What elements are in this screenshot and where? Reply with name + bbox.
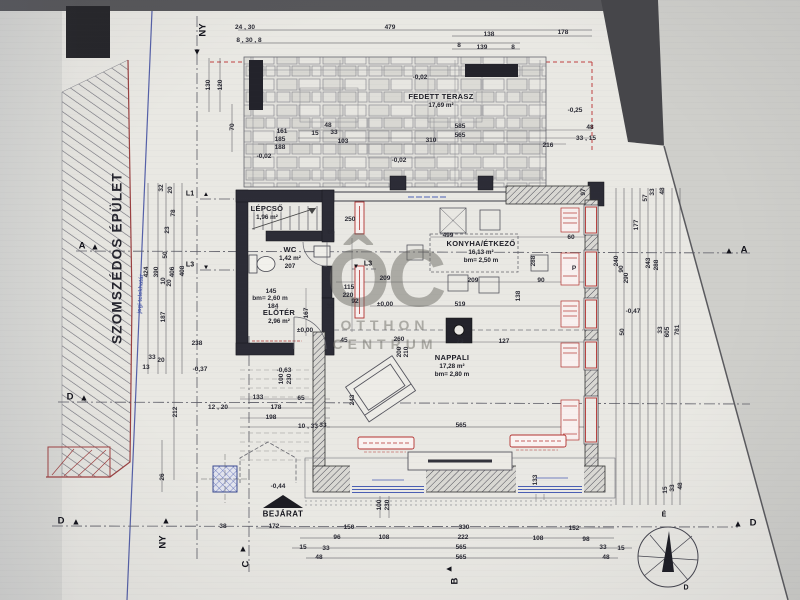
dim-label: 565: [456, 545, 467, 552]
dim-label: 50: [620, 328, 627, 335]
dim-label: -0,37: [193, 367, 208, 374]
section-marker: É: [662, 512, 667, 519]
dim-label: 178: [271, 405, 282, 412]
section-marker: D: [750, 518, 757, 528]
dim-label: 70: [230, 123, 237, 130]
dim-label: 150: [344, 525, 355, 532]
room-area: 16,13 m²: [447, 249, 516, 257]
section-marker-triangle: ▲: [725, 247, 734, 256]
dim-label: -0,02: [413, 75, 428, 82]
dim-label: 138: [516, 291, 523, 302]
room-name: NAPPALI: [435, 353, 469, 363]
dim-label: 188: [275, 145, 286, 152]
dim-label: 38: [219, 524, 226, 531]
dim-label: 65: [297, 396, 304, 403]
room-height: 207: [279, 263, 301, 271]
room-name: FEDETT TERASZ: [408, 92, 473, 102]
dim-label: 98: [582, 537, 589, 544]
dim-label: 185: [275, 137, 286, 144]
room-label: FEDETT TERASZ17,69 m²: [408, 92, 473, 110]
dim-label: 20: [157, 358, 164, 365]
dim-label: 177: [634, 220, 641, 231]
section-marker: D: [67, 392, 74, 402]
section-marker: A: [79, 241, 86, 251]
dim-label: 260: [394, 337, 405, 344]
dim-label: -0,02: [257, 154, 272, 161]
dim-label: 32: [159, 184, 166, 191]
section-marker-triangle: ▲: [239, 545, 248, 554]
dim-label: 26: [160, 473, 167, 480]
dim-label: 48: [678, 482, 685, 489]
dim-label: 139: [477, 45, 488, 52]
section-marker: B: [450, 578, 460, 585]
room-name: KONYHA/ÉTKEZŐ: [447, 239, 516, 249]
dim-label: 33: [322, 546, 329, 553]
dim-label: -0,47: [626, 309, 641, 316]
dim-label: 96: [333, 535, 340, 542]
dim-label: 45: [340, 338, 347, 345]
dim-label: 10 , 33: [298, 424, 318, 431]
dim-label: 90: [537, 278, 544, 285]
dim-label: 209: [380, 276, 391, 283]
dim-label: 48: [602, 555, 609, 562]
dim-label: 238: [192, 341, 203, 348]
dim-label: 78: [171, 209, 178, 216]
dim-label: 127: [499, 339, 510, 346]
dim-label: 390: [154, 267, 161, 278]
room-area: 17,28 m²: [435, 363, 469, 371]
section-marker-triangle: ▲: [445, 565, 454, 574]
dim-label: 222: [458, 535, 469, 542]
section-marker: L1: [186, 191, 194, 198]
dim-label: 33: [599, 545, 606, 552]
dim-label: 288: [531, 256, 538, 267]
dim-label: 20: [168, 186, 175, 193]
room-label: LÉPCSŐ1,96 m²: [251, 204, 284, 222]
dim-label: 8: [457, 43, 461, 50]
room-area: 1,96 m²: [251, 214, 284, 222]
dim-label: -0,25: [568, 108, 583, 115]
dim-label: 33: [148, 355, 155, 362]
dim-label: 20: [167, 279, 174, 286]
dim-label: 310: [426, 138, 437, 145]
section-marker-triangle: ▲: [193, 48, 202, 57]
room-height: bm= 2,80 m: [435, 371, 469, 379]
section-marker-triangle: ▲: [80, 394, 89, 403]
room-label: KONYHA/ÉTKEZŐ16,13 m²bm= 2,50 m: [447, 239, 516, 265]
dim-label: 48: [586, 125, 593, 132]
room-label: NAPPALI17,28 m²bm= 2,80 m: [435, 353, 469, 379]
section-marker-triangle: ▲: [72, 518, 81, 527]
dim-label: 565: [456, 423, 467, 430]
dim-label: 585: [455, 124, 466, 131]
dim-label: 172: [269, 524, 280, 531]
dim-label: 212: [173, 407, 180, 418]
dim-label: 100: [279, 374, 286, 385]
dim-label: 565: [455, 133, 466, 140]
dim-label: 479: [385, 25, 396, 32]
dim-label: 33: [650, 188, 657, 195]
dim-label: 210: [404, 347, 411, 358]
dim-label: P: [572, 266, 576, 273]
section-marker: D: [683, 585, 688, 592]
room-label: ELŐTÉR2,96 m²: [263, 308, 295, 326]
dim-label: 230: [287, 374, 294, 385]
dim-label: 48: [315, 555, 322, 562]
dim-label: 15: [299, 545, 306, 552]
dim-label: 92: [351, 299, 358, 306]
dim-label: 60: [567, 235, 574, 242]
dim-label: 133: [253, 395, 264, 402]
dim-label: 108: [533, 536, 544, 543]
dim-label: 100: [377, 500, 384, 511]
dim-label: bm= 2,60 m: [252, 296, 288, 303]
dim-label: 15: [617, 546, 624, 553]
dim-label: ±0,00: [377, 302, 393, 309]
dim-label: 33: [326, 304, 333, 311]
room-label: WC1,42 m²207: [279, 245, 301, 271]
dim-label: 138: [484, 32, 495, 39]
dim-label: 33: [319, 423, 326, 430]
section-marker: L3: [364, 261, 372, 268]
dim-label: 115: [344, 285, 355, 292]
section-marker: NY: [158, 535, 168, 548]
dim-label: 13: [142, 365, 149, 372]
dim-label: 243: [646, 258, 653, 269]
room-area: 1,42 m²: [279, 255, 301, 263]
section-marker: D: [58, 516, 65, 526]
section-marker: NY: [198, 23, 208, 36]
annotation-layer: 24 , 308 , 30 , 847913881398178-0,25-0,0…: [0, 0, 800, 600]
dim-label: -0,44: [271, 484, 286, 491]
dim-label: 120: [218, 80, 225, 91]
section-marker-triangle: ▲: [91, 243, 100, 252]
dim-label: 519: [455, 302, 466, 309]
room-name: ELŐTÉR: [263, 308, 295, 318]
floorplan-photo: { "watermark": {"monogram": "ÔC", "line1…: [0, 0, 800, 600]
dim-label: 167: [304, 308, 311, 319]
dim-label: 8 , 30 , 8: [236, 38, 261, 45]
dim-label: 198: [266, 415, 277, 422]
section-marker: C: [241, 561, 251, 568]
dim-label: 108: [379, 535, 390, 542]
dim-label: 290: [624, 273, 631, 284]
dim-label: 152: [569, 526, 580, 533]
dim-label: 133: [533, 475, 540, 486]
section-marker-triangle: ▲: [162, 517, 171, 526]
dim-label: 424: [144, 267, 151, 278]
dim-label: 230: [385, 500, 392, 511]
dim-label: 12 , 20: [208, 405, 228, 412]
dim-label: 8: [511, 45, 515, 52]
dim-label: 65: [327, 230, 334, 237]
dim-label: 23: [165, 226, 172, 233]
section-marker-triangle: ▲: [353, 262, 359, 269]
dim-label: 103: [338, 139, 349, 146]
dim-label: 209: [468, 278, 479, 285]
dim-label: 130: [206, 80, 213, 91]
dim-label: 24 , 30: [235, 25, 255, 32]
dim-label: 781: [675, 325, 682, 336]
dim-label: 48: [660, 187, 667, 194]
dim-label: 565: [456, 555, 467, 562]
section-marker-triangle: ▲: [203, 192, 209, 199]
dim-label: 161: [277, 129, 288, 136]
room-name: LÉPCSŐ: [251, 204, 284, 214]
dim-label: 33 , 15: [576, 136, 596, 143]
dim-label: 33: [670, 484, 677, 491]
dim-label: -0,02: [392, 158, 407, 165]
dim-label: 243: [350, 395, 357, 406]
dim-label: 330: [459, 525, 470, 532]
section-marker: A: [741, 245, 748, 255]
room-height: bm= 2,50 m: [447, 257, 516, 265]
section-marker-triangle: ▲: [734, 520, 743, 529]
section-marker-triangle: ▲: [203, 263, 209, 270]
room-area: 2,96 m²: [263, 318, 295, 326]
dim-label: 605: [665, 327, 672, 338]
dim-label: 50: [163, 251, 170, 258]
dim-label: 288: [654, 260, 661, 271]
dim-label: 73: [456, 339, 463, 346]
dim-label: 216: [543, 143, 554, 150]
dim-label: 33: [330, 130, 337, 137]
dim-label: 15: [311, 131, 318, 138]
room-area: 17,69 m²: [408, 102, 473, 110]
dim-label: 178: [558, 30, 569, 37]
dim-label: 250: [345, 217, 356, 224]
dim-label: 97: [581, 188, 588, 195]
dim-label: 406: [170, 267, 177, 278]
section-marker: L3: [186, 262, 194, 269]
dim-label: 187: [161, 312, 168, 323]
dim-label: ±0,00: [297, 328, 313, 335]
room-name: WC: [279, 245, 301, 255]
